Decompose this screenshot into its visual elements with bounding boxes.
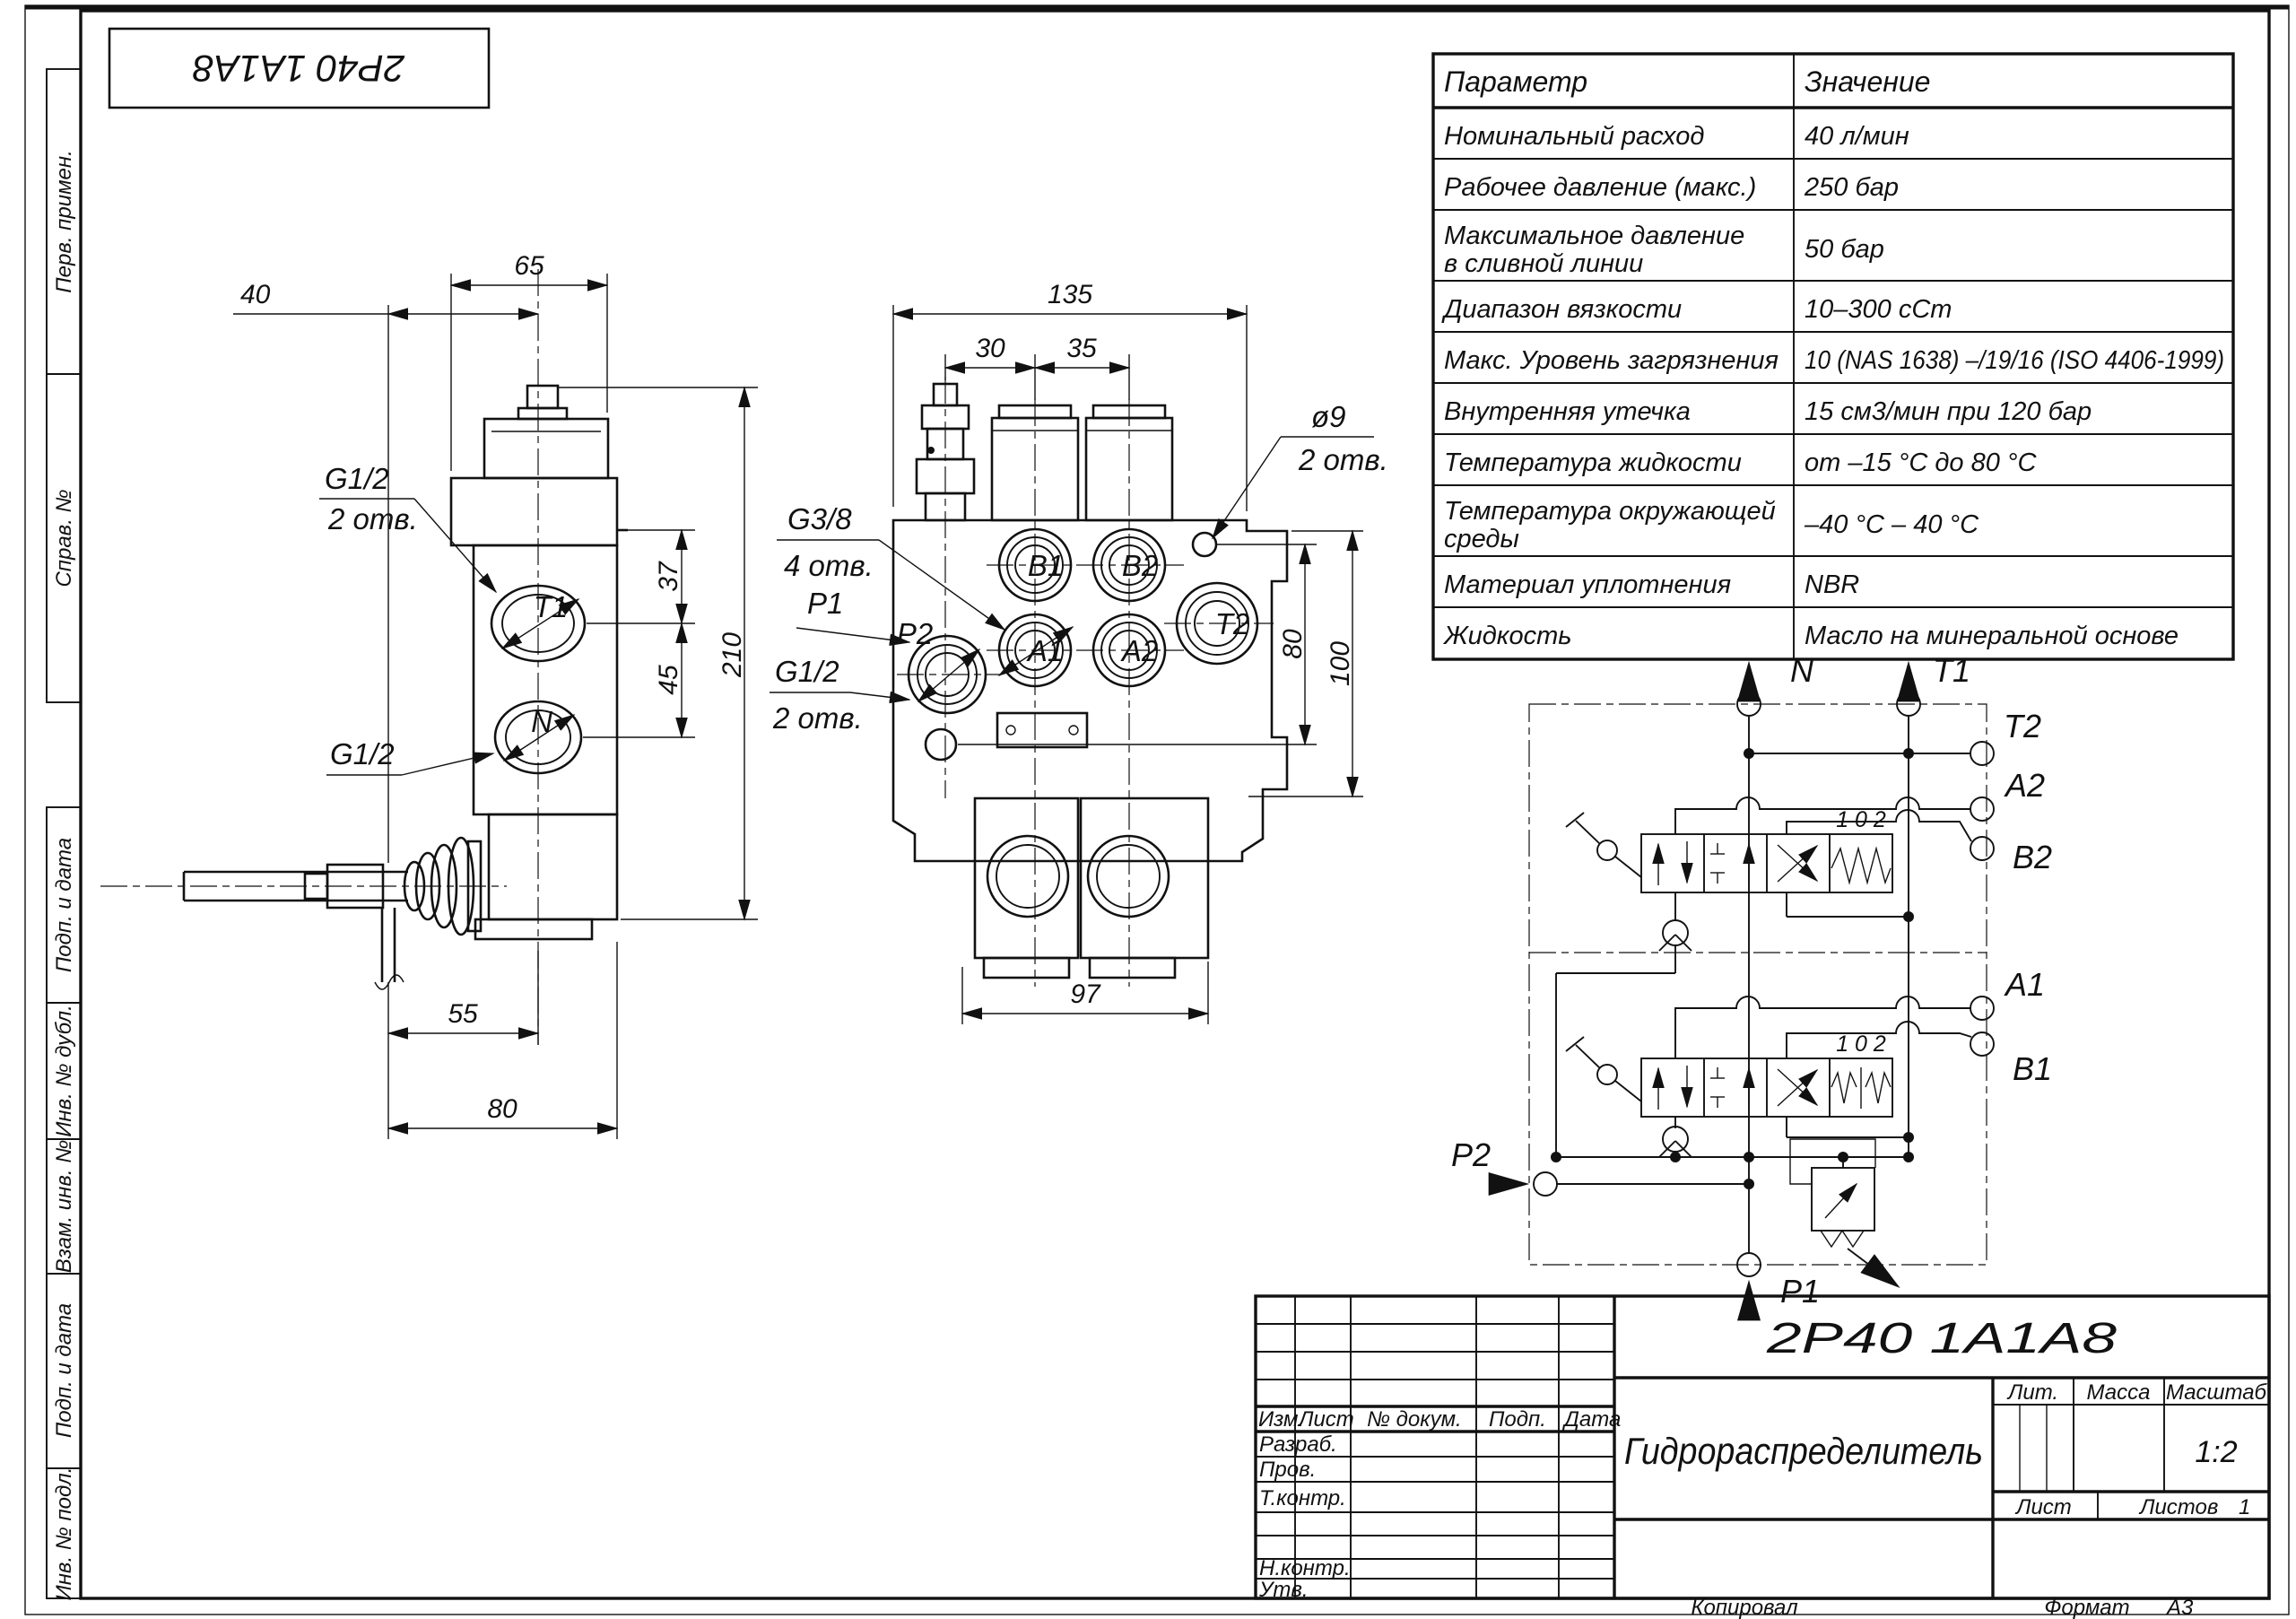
th-podp: Подп. [1489, 1407, 1546, 1432]
param-name: Внутренняя утечка [1444, 397, 1691, 426]
margin-label-vzam-inv: Взам. инв. № [52, 1140, 76, 1273]
thread-g38-label: G3/8 [787, 502, 852, 535]
th-data: Дата [1561, 1407, 1621, 1432]
margin-label-podp-data-2: Подп. и дата [52, 1303, 76, 1438]
table-header-param: Параметр [1444, 65, 1587, 98]
port-b1-label: B1 [1028, 549, 1064, 582]
drawing-canvas: 2Р40 1А1А8 Перв. примен. Справ. № Подп. … [0, 0, 2296, 1619]
param-name-line2: среды [1444, 525, 1519, 553]
table-row: Рабочее давление (макс.) 250 бар [1444, 173, 1899, 202]
valve-section-lower: 1 0 2 [1566, 1031, 1892, 1117]
side-view-dimensions: 65 40 210 37 45 55 80 [233, 251, 758, 1139]
margin-label-podp-data-1: Подп. и дата [52, 838, 76, 972]
param-value: 10–300 сСт [1805, 295, 1952, 324]
port-b2-label: B2 [1122, 549, 1158, 582]
margin-label-perv-primen: Перв. примен. [52, 150, 76, 293]
left-margin-column: Перв. примен. Справ. № Подп. и дата Инв.… [47, 69, 81, 1600]
param-value: 10 (NAS 1638) –/19/16 (ISO 4406-1999) [1805, 346, 2224, 375]
tr-tkontr: Т.контр. [1259, 1486, 1346, 1510]
th-list2: Лист [2014, 1495, 2072, 1519]
schematic-port-t1: T1 [1933, 652, 1970, 689]
param-value: от –15 °С до 80 °С [1805, 448, 2038, 477]
th-masshtab: Масштаб [2166, 1380, 2268, 1405]
param-value: 40 л/мин [1805, 122, 1909, 151]
th-lit: Лит. [2006, 1380, 2058, 1405]
param-value: 15 см3/мин при 120 бар [1805, 397, 2092, 426]
th-ndoc: № докум. [1367, 1407, 1462, 1432]
param-value: NBR [1805, 570, 1859, 599]
tr-prov: Пров. [1259, 1458, 1316, 1482]
table-row: Материал уплотнения NBR [1444, 570, 1859, 599]
table-row: Жидкость Масло на минеральной основе [1442, 622, 2179, 650]
footer-kopiroval: Копировал [1691, 1596, 1798, 1619]
param-value: –40 °С – 40 °С [1804, 510, 1979, 539]
footer-format-value: А3 [2165, 1596, 2194, 1619]
footer-format-label: Формат [2044, 1596, 2129, 1619]
scale-value: 1:2 [2195, 1435, 2237, 1469]
dim-97: 97 [1070, 979, 1101, 1009]
table-row: Температура окружающей среды –40 °С – 40… [1444, 497, 1979, 553]
param-name: Температура жидкости [1444, 448, 1742, 477]
drawing-sheet: 2Р40 1А1А8 Перв. примен. Справ. № Подп. … [0, 0, 2296, 1619]
table-row: Внутренняя утечка 15 см3/мин при 120 бар [1444, 397, 2092, 426]
port-a2-label: A2 [1120, 634, 1158, 667]
tr-utv: Утв. [1258, 1578, 1309, 1602]
title-block: Изм. Лист № докум. Подп. Дата Разраб. Пр… [1256, 1296, 2269, 1602]
param-name: Диапазон вязкости [1441, 295, 1682, 324]
dim-65: 65 [514, 251, 544, 281]
valve-positions-lower: 1 0 2 [1836, 1031, 1886, 1057]
table-header-value: Значение [1805, 65, 1930, 98]
param-name: Жидкость [1442, 622, 1571, 650]
dim-55: 55 [448, 999, 478, 1029]
margin-label-inv-dubl: Инв. № дубл. [52, 1005, 76, 1137]
dim-135: 135 [1048, 280, 1092, 309]
table-row: Температура жидкости от –15 °С до 80 °С [1444, 448, 2038, 477]
thread-g12-top-qty: 2 отв. [327, 502, 418, 535]
parameters-table: Параметр Значение Номинальный расход 40 … [1433, 54, 2233, 659]
schematic-port-n: N [1790, 652, 1814, 689]
table-row: Номинальный расход 40 л/мин [1444, 122, 1909, 151]
param-name: Номинальный расход [1444, 122, 1704, 151]
valve-positions-upper: 1 0 2 [1836, 807, 1886, 832]
thread-g12-qty: 2 отв. [772, 701, 863, 735]
schematic-port-b1: B1 [2013, 1050, 2052, 1087]
side-port-n-label: N [531, 705, 552, 738]
tr-razrab: Разраб. [1259, 1432, 1337, 1457]
param-name-line2: в сливной линии [1444, 249, 1643, 278]
param-name: Материал уплотнения [1444, 570, 1731, 599]
schematic-port-p2: P2 [1451, 1136, 1491, 1173]
valve-section-upper: 1 0 2 [1566, 807, 1892, 892]
schematic-port-t2: T2 [2004, 708, 2041, 744]
param-name: Температура окружающей [1444, 497, 1776, 526]
hole-qty-label: 2 отв. [1298, 443, 1388, 476]
tr-nkontr: Н.контр. [1259, 1556, 1351, 1580]
margin-label-inv-podl: Инв. № подл. [52, 1467, 76, 1601]
schematic-port-b2: B2 [2013, 839, 2052, 875]
dim-80-front: 80 [1278, 629, 1308, 659]
dim-30: 30 [975, 334, 1005, 363]
port-p2-label: P2 [897, 617, 933, 650]
param-value: 50 бар [1805, 235, 1884, 264]
param-value: Масло на минеральной основе [1805, 622, 2179, 650]
port-p1-callout: P1 [807, 587, 843, 620]
schematic-port-a2: A2 [2004, 767, 2045, 804]
th-list: Лист [1297, 1407, 1354, 1432]
dim-37: 37 [654, 561, 683, 592]
front-lower-block [975, 798, 1208, 978]
doc-name: Гидрораспределитель [1624, 1430, 1983, 1472]
th-izm: Изм. [1258, 1407, 1304, 1432]
port-t2-label: T2 [1215, 607, 1250, 640]
thread-g38-qty: 4 отв. [784, 549, 874, 582]
hydraulic-schematic: N T1 T2 A2 B2 1 0 2 [1451, 652, 2052, 1310]
table-row: Макс. Уровень загрязнения 10 (NAS 1638) … [1444, 346, 2224, 375]
schematic-port-p1: P1 [1780, 1273, 1820, 1310]
margin-label-sprav-no: Справ. № [52, 489, 76, 587]
port-a1-label: A1 [1026, 634, 1064, 667]
side-view-callouts: G1/2 2 отв. G1/2 [319, 462, 496, 775]
dim-40: 40 [240, 280, 271, 309]
table-row: Максимальное давление в сливной линии 50… [1444, 222, 1884, 278]
param-name: Максимальное давление [1444, 222, 1744, 250]
dim-100: 100 [1326, 641, 1355, 686]
stamp-designation: 2Р40 1А1А8 [192, 48, 405, 90]
param-value: 250 бар [1804, 173, 1899, 202]
thread-g12-top: G1/2 [325, 462, 389, 495]
control-lever [184, 838, 481, 989]
hole-dia-label: ø9 [1311, 400, 1346, 433]
thread-g12-label: G1/2 [775, 655, 839, 688]
th-massa: Масса [2087, 1380, 2151, 1405]
listov-value: 1 [2239, 1495, 2250, 1519]
dim-45: 45 [654, 665, 683, 695]
front-view: B1 B2 A1 A2 T2 P2 135 [770, 280, 1388, 1024]
param-name: Рабочее давление (макс.) [1444, 173, 1756, 202]
table-row: Диапазон вязкости 10–300 сСт [1441, 295, 1952, 324]
dim-210: 210 [717, 632, 747, 678]
side-port-t1-label: T1 [534, 590, 569, 623]
front-ports: B1 B2 A1 A2 T2 P2 [897, 529, 1257, 760]
schematic-port-a1: A1 [2004, 966, 2045, 1003]
side-view: T1 N 65 40 [100, 251, 758, 1139]
drawing-frame: 2Р40 1А1А8 Перв. примен. Справ. № Подп. … [25, 5, 2289, 1615]
doc-designation: 2Р40 1А1А8 [1766, 1315, 2118, 1362]
dim-80-side: 80 [487, 1094, 517, 1124]
th-listov: Листов [2138, 1495, 2218, 1519]
dim-35: 35 [1066, 334, 1097, 363]
param-name: Макс. Уровень загрязнения [1444, 346, 1779, 375]
thread-g12-bottom: G1/2 [330, 737, 395, 770]
